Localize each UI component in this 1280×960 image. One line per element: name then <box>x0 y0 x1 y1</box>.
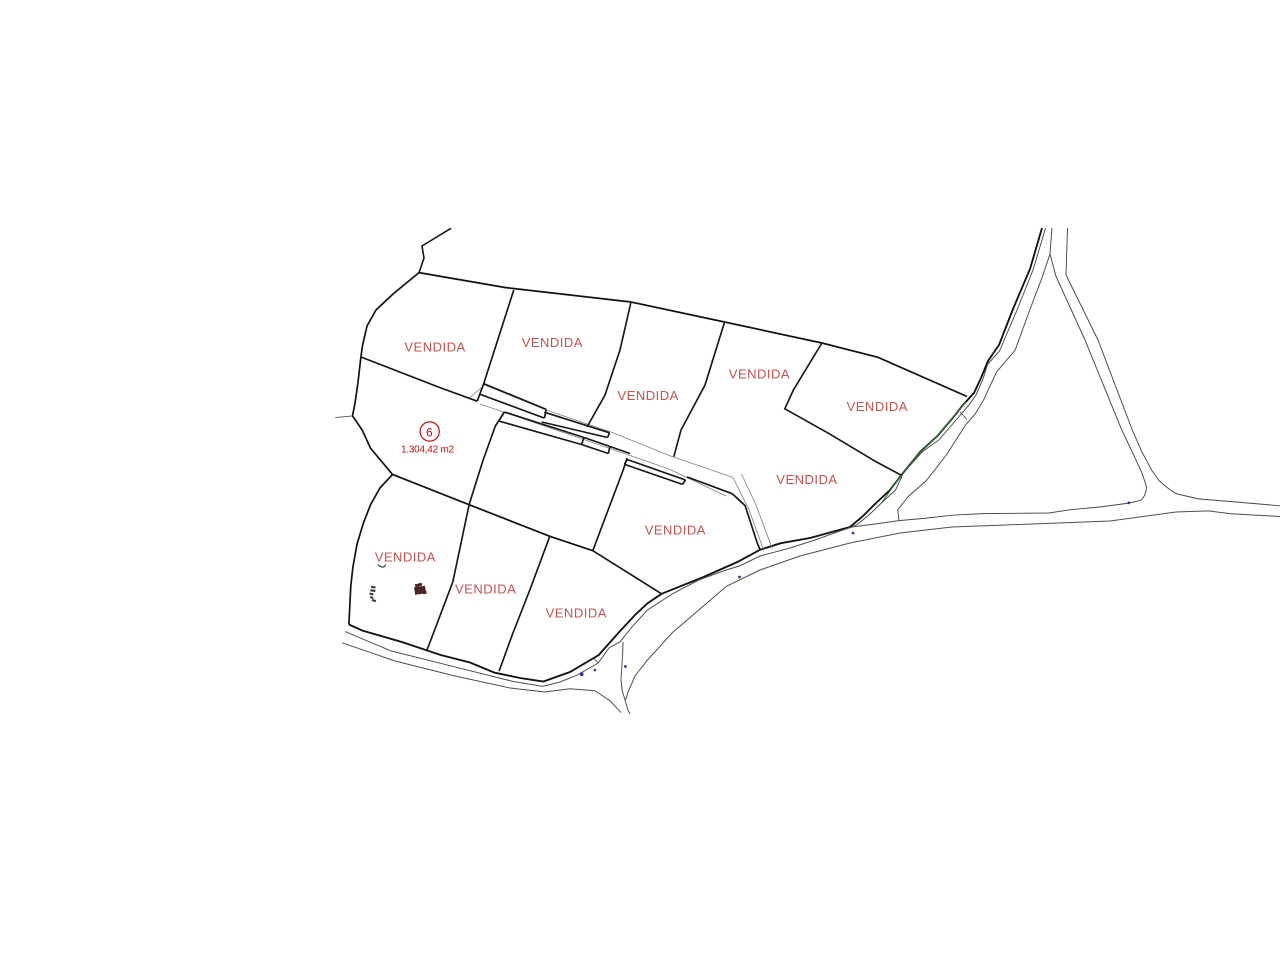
svg-text:VENDIDA: VENDIDA <box>375 550 436 565</box>
svg-text:VENDIDA: VENDIDA <box>645 523 706 538</box>
svg-text:VENDIDA: VENDIDA <box>847 399 908 414</box>
svg-text:VENDIDA: VENDIDA <box>776 472 837 487</box>
svg-text:1.304,42 m2: 1.304,42 m2 <box>401 444 455 455</box>
svg-text:VENDIDA: VENDIDA <box>455 582 516 597</box>
svg-text:6: 6 <box>426 426 433 440</box>
svg-text:VENDIDA: VENDIDA <box>404 339 465 354</box>
svg-text:VENDIDA: VENDIDA <box>546 606 607 621</box>
svg-text:VENDIDA: VENDIDA <box>618 388 679 403</box>
svg-text:VENDIDA: VENDIDA <box>729 367 790 382</box>
svg-text:VENDIDA: VENDIDA <box>522 335 583 350</box>
